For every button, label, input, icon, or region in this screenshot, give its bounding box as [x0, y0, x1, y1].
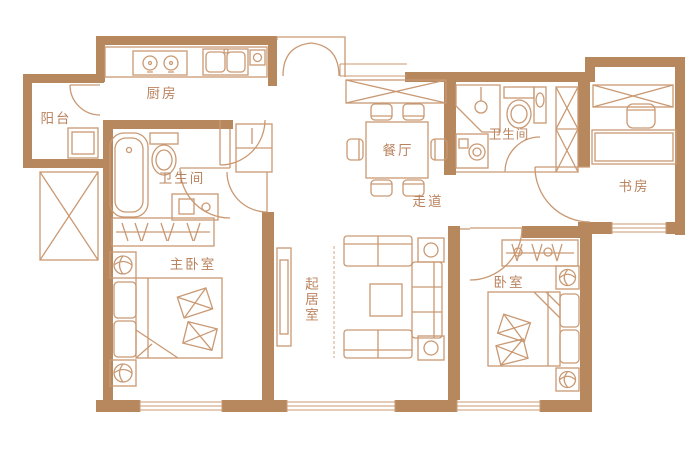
stair-shaft-icon: [40, 172, 98, 260]
basin-icon: [534, 87, 546, 123]
room-label-living-room: 起居室: [300, 277, 320, 324]
floor-plan-drawing: [0, 0, 700, 452]
bedroom-furniture: [488, 240, 579, 391]
room-label-master-bedroom: 主卧室: [170, 253, 217, 273]
nightstand-icon: [556, 266, 579, 289]
vanity-icon: [172, 194, 218, 220]
stove-icon: [133, 51, 187, 75]
room-label-dining-room: 餐厅: [383, 139, 414, 159]
coffee-table-icon: [370, 284, 402, 316]
toilet-icon: [504, 87, 534, 128]
nightstand-icon: [110, 252, 136, 278]
bed-icon: [488, 292, 579, 366]
side-table-icon: [418, 238, 444, 262]
room-label-hallway: 走道: [413, 190, 444, 210]
kitchen-fixtures: [105, 47, 272, 172]
nightstand-icon: [556, 368, 579, 391]
bathtub-icon: [110, 133, 148, 217]
sink-icon: [203, 49, 248, 75]
room-label-bathroom-guest: 卫生间: [489, 124, 530, 143]
sofa-icon: [412, 262, 442, 338]
study-door-icon: [535, 167, 590, 222]
balcony-door-icon: [70, 85, 100, 115]
study-furniture: [592, 104, 676, 164]
side-table-icon: [418, 336, 444, 360]
washer-icon: [68, 128, 98, 158]
bed-icon: [114, 278, 222, 358]
room-label-kitchen: 厨房: [147, 82, 178, 102]
fridge-icon: [236, 124, 272, 172]
room-label-study: 书房: [619, 175, 650, 195]
tv-cabinet-icon: [277, 248, 291, 346]
dining-cabinet-icon: [346, 80, 446, 103]
balcony-fixtures: [68, 128, 98, 158]
dining-chair-icon: [371, 180, 392, 196]
room-label-bedroom: 卧室: [494, 271, 525, 291]
room-label-bathroom-main: 卫生间: [159, 167, 206, 187]
floor-plan: 阳台 厨房 卫生间 主卧室 起居室 餐厅 走道 卫生间 书房 卧室: [0, 0, 700, 452]
dining-chair-icon: [371, 104, 392, 120]
wardrobe-icon: [502, 240, 578, 266]
nightstand-icon: [110, 360, 136, 386]
wardrobe-icon: [112, 218, 214, 246]
master-bedroom-furniture: [110, 218, 222, 386]
desk-icon: [592, 130, 676, 164]
master-bedroom-door-icon: [227, 172, 267, 212]
duct-shaft-icon: [556, 87, 578, 172]
service-double-door-icon: [283, 43, 339, 76]
dining-chair-icon: [347, 139, 363, 160]
sofa-icon: [344, 330, 412, 358]
room-label-balcony: 阳台: [41, 107, 72, 127]
quilt-decor-icon: [496, 314, 530, 365]
dining-chair-icon: [403, 104, 424, 120]
small-appliance-icon: [250, 50, 265, 65]
quilt-decor-icon: [177, 288, 217, 350]
sofa-icon: [344, 236, 412, 266]
washing-machine-icon: [456, 134, 488, 168]
